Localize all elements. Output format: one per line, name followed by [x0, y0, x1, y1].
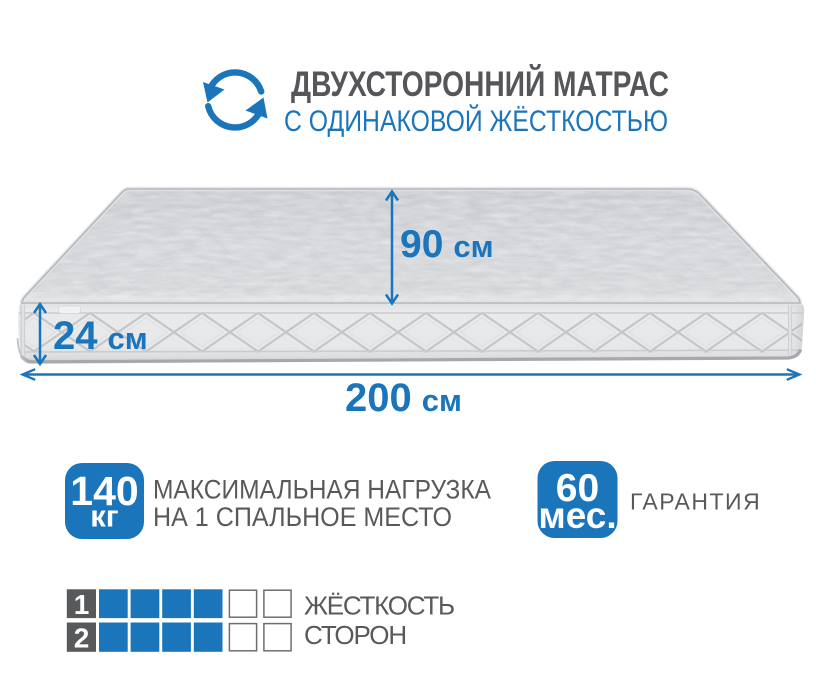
svg-text:2: 2	[74, 622, 90, 653]
svg-text:1: 1	[74, 589, 90, 620]
svg-text:СТОРОН: СТОРОН	[304, 620, 406, 650]
svg-text:мес.: мес.	[538, 495, 616, 536]
svg-text:С ОДИНАКОВОЙ ЖЁСТКОСТЬЮ: С ОДИНАКОВОЙ ЖЁСТКОСТЬЮ	[284, 104, 668, 138]
svg-text:НА 1 СПАЛЬНОЕ МЕСТО: НА 1 СПАЛЬНОЕ МЕСТО	[153, 502, 452, 532]
svg-text:ЖЁСТКОСТЬ: ЖЁСТКОСТЬ	[304, 591, 454, 621]
svg-text:ГАРАНТИЯ: ГАРАНТИЯ	[630, 489, 761, 515]
svg-text:кг: кг	[90, 499, 119, 534]
svg-text:ДВУХСТОРОННИЙ МАТРАС: ДВУХСТОРОННИЙ МАТРАС	[291, 64, 669, 104]
svg-text:200см: 200см	[345, 376, 462, 420]
svg-text:МАКСИМАЛЬНАЯ НАГРУЗКА: МАКСИМАЛЬНАЯ НАГРУЗКА	[153, 475, 491, 505]
